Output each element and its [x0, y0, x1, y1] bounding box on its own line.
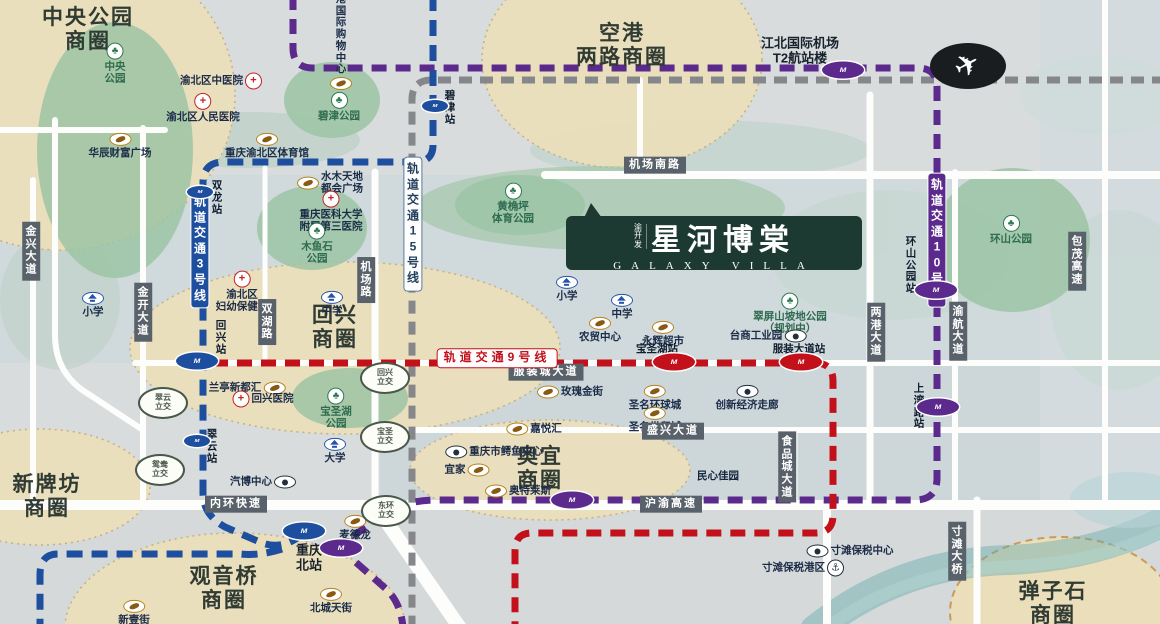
poi-park: ♣碧津公园: [318, 92, 360, 122]
logo-subtitle: GALAXY VILLA: [613, 260, 815, 272]
road-label: 寸滩大桥: [948, 522, 966, 581]
road-label: 渝航大道: [949, 302, 967, 361]
road-label: 包茂高速: [1068, 232, 1086, 291]
poi-anchor: ⚓寸滩保税港区: [762, 560, 844, 577]
district-title: 观音桥 商圈: [190, 565, 259, 613]
landmark-icon: [274, 476, 296, 489]
poi-eye: 创新经济走廊: [716, 385, 779, 411]
poi-label: 新壹街: [118, 614, 150, 624]
road-label: 双湖路: [258, 299, 276, 345]
road-label-text: 金兴大道: [25, 226, 36, 276]
road-label: 机场路: [357, 257, 375, 303]
anchor-icon: ⚓: [827, 560, 844, 577]
road-label: 机场南路: [624, 157, 686, 174]
metro-station: M: [917, 399, 959, 416]
road-label: 金开大道: [134, 283, 152, 342]
poi-shop: 奥特莱斯: [485, 485, 551, 498]
road-label-text: 寸滩大桥: [951, 526, 962, 576]
shopping-icon: [506, 423, 528, 436]
poi-bold: 江北国际机场 T2航站楼: [761, 36, 839, 67]
poi-park: ♣黄桷坪 体育公园: [492, 183, 534, 226]
shopping-icon: [537, 386, 559, 399]
poi-stname: 翠云站: [206, 429, 218, 464]
shopping-icon: [644, 385, 666, 398]
location-map: ✈ 中央公园 商圈空港 两路商圈回兴 商圈奥宜 商圈新牌坊 商圈观音桥 商圈弹子…: [0, 0, 1160, 624]
interchange-oval: 翠云立交: [138, 387, 188, 419]
road-label-text: 机场南路: [629, 159, 681, 171]
poi-label: 寸滩保税中心: [831, 545, 894, 557]
poi-shop: 金港国际购物中心: [330, 0, 352, 90]
metro-logo-icon: M: [933, 287, 940, 293]
interchange-label: 东环立交: [377, 502, 395, 520]
logo-title: 星河博棠: [651, 215, 795, 259]
poi-label: 小学: [83, 306, 104, 318]
road-label: 食品城大道: [778, 431, 796, 502]
school-icon: [321, 291, 343, 304]
poi-hospital: +渝北区中医院: [180, 73, 262, 90]
poi-label: 黄桷坪 体育公园: [492, 201, 534, 226]
poi-school: 中学: [611, 294, 633, 320]
poi-shop: 新壹街: [118, 600, 150, 624]
interchange-label: 鸳鸯立交: [151, 461, 169, 479]
poi-label: 嘉悦汇: [530, 423, 562, 435]
landmark-icon: [807, 545, 829, 558]
poi-hospital: +回兴医院: [233, 391, 294, 408]
landmark-icon: [784, 330, 806, 343]
metro-station: M: [283, 523, 325, 540]
metro-logo-icon: M: [935, 404, 942, 410]
district-title: 弹子石 商圈: [1019, 580, 1088, 624]
metro-station: M: [653, 354, 695, 371]
interchange-label: 回兴立交: [376, 369, 394, 387]
metro-station: M: [780, 354, 822, 371]
poi-label: 宝圣湖 公园: [320, 406, 352, 431]
poi-shop: 玫瑰金街: [537, 386, 603, 399]
metro-station: M: [551, 492, 593, 509]
road-label: 盛兴大道: [642, 423, 704, 440]
interchange-label: 宝圣立交: [376, 428, 394, 446]
logo-pointer: [584, 203, 602, 218]
metro-logo-icon: M: [338, 545, 345, 551]
road-label-text: 金开大道: [137, 287, 148, 337]
interchange-oval: 鸳鸯立交: [135, 454, 185, 486]
road-label-text: 盛兴大道: [647, 425, 699, 437]
hospital-cross-icon: +: [323, 191, 340, 208]
poi-label: 寸滩保税港区: [762, 562, 825, 574]
metro-line-label-text: 轨道交通9号线: [444, 350, 551, 364]
poi-stname: 双龙站: [211, 180, 223, 215]
shopping-icon: [485, 485, 507, 498]
poi-label: 小学: [557, 290, 578, 302]
poi-label: 碧津公园: [318, 110, 360, 122]
poi-label: 双龙站: [211, 180, 223, 215]
poi-shop: 北城天街: [310, 588, 352, 614]
tree-icon: ♣: [331, 92, 348, 109]
metro-station: M: [422, 100, 448, 112]
shopping-icon: [589, 317, 611, 330]
metro-logo-icon: M: [195, 439, 200, 444]
poi-label: 重庆渝北区体育馆: [225, 147, 309, 159]
metro-line-label: 轨道交通3号线: [190, 189, 209, 308]
poi-bold: 重庆 北站: [296, 543, 322, 574]
road-label-text: 沪渝高速: [645, 498, 697, 510]
hospital-cross-icon: +: [195, 93, 212, 110]
poi-shop: 宜家: [445, 464, 490, 477]
poi-park: ♣环山公园: [990, 215, 1032, 245]
poi-label: 中学: [612, 308, 633, 320]
poi-label: 翠云站: [206, 429, 218, 464]
poi-park: ♣宝圣湖 公园: [320, 388, 352, 431]
poi-label: 汽博中心: [230, 476, 272, 488]
poi-hospital: +渝北区人民医院: [166, 93, 240, 123]
metro-logo-icon: M: [798, 359, 805, 365]
interchange-oval: 东环立交: [361, 495, 411, 527]
poi-label: 回兴站: [215, 320, 227, 355]
poi-text: 民心佳园: [697, 470, 739, 482]
metro-station: M: [822, 62, 864, 79]
road-label-text: 机场路: [360, 261, 371, 298]
district-title-text: 观音桥 商圈: [190, 565, 259, 612]
project-logo: 渝开发 星河博棠 GALAXY VILLA: [566, 216, 862, 270]
hospital-cross-icon: +: [233, 391, 250, 408]
metro-logo-icon: M: [198, 190, 203, 195]
poi-label: 木鱼石 公园: [301, 241, 333, 266]
poi-label: 大学: [325, 452, 346, 464]
poi-school: 小学: [556, 276, 578, 302]
poi-label: 农贸中心: [579, 331, 621, 343]
road-label-text: 内环快速: [210, 498, 262, 510]
shopping-icon: [652, 321, 674, 334]
metro-logo-icon: M: [433, 104, 438, 109]
poi-label: 台商工业园: [730, 330, 783, 342]
poi-label: 金港国际购物中心: [335, 0, 347, 76]
district-title-text: 新牌坊 商圈: [13, 473, 82, 520]
metro-line-label-text: 轨道交通3号线: [194, 194, 206, 302]
metro-station: M: [915, 282, 957, 299]
poi-shop: 重庆渝北区体育馆: [225, 133, 309, 159]
poi-eye: 汽博中心: [230, 476, 296, 489]
poi-label: 华辰财富广场: [89, 147, 152, 159]
poi-label: 创新经济走廊: [716, 399, 779, 411]
shopping-icon: [123, 600, 145, 613]
poi-label: 重庆市鳄鱼中心: [469, 446, 543, 458]
poi-shop: 华辰财富广场: [89, 133, 152, 159]
road-label: 沪渝高速: [640, 496, 702, 513]
airplane-glyph: ✈: [950, 47, 986, 85]
tree-icon: ♣: [782, 293, 799, 310]
metro-station: M: [320, 540, 362, 557]
poi-park: ♣中央 公园: [105, 43, 126, 86]
poi-school: 大学: [324, 438, 346, 464]
district-title: 空港 两路商圈: [576, 22, 668, 70]
shopping-icon: [297, 177, 319, 190]
poi-eye: 寸滩保税中心: [807, 545, 894, 558]
shopping-icon: [644, 407, 666, 420]
metro-station: M: [176, 353, 218, 370]
landmark-icon: [736, 385, 758, 398]
road-label-text: 渝航大道: [952, 306, 963, 356]
shopping-icon: [468, 464, 490, 477]
school-icon: [324, 438, 346, 451]
metro-line-label: 轨道交通15号线: [403, 157, 422, 292]
interchange-label: 翠云立交: [154, 394, 172, 412]
metro-line-label-text: 轨道交通15号线: [407, 162, 419, 285]
interchange-oval: 回兴立交: [360, 362, 410, 394]
tree-icon: ♣: [328, 388, 345, 405]
interchange-oval: 宝圣立交: [360, 421, 410, 453]
tree-icon: ♣: [309, 223, 326, 240]
poi-label: 民心佳园: [697, 470, 739, 482]
landmark-icon: [445, 446, 467, 459]
road-label: 内环快速: [205, 496, 267, 513]
poi-label: 中央 公园: [105, 61, 126, 86]
road-label-text: 包茂高速: [1071, 236, 1082, 286]
metro-line-label: 轨道交通9号线: [437, 348, 558, 368]
school-icon: [611, 294, 633, 307]
poi-label: 回兴医院: [252, 393, 294, 405]
hospital-cross-icon: +: [234, 271, 251, 288]
road-label: 两港大道: [867, 303, 885, 362]
shopping-icon: [330, 77, 352, 90]
poi-label: 渝北区中医院: [180, 75, 243, 87]
road-label-text: 两港大道: [870, 307, 881, 357]
tree-icon: ♣: [107, 43, 124, 60]
road-label-text: 食品城大道: [781, 435, 792, 498]
poi-eye: 台商工业园: [730, 330, 807, 343]
poi-stname: 回兴站: [215, 320, 227, 355]
tree-icon: ♣: [1003, 215, 1020, 232]
district-title-text: 空港 两路商圈: [576, 22, 668, 69]
poi-school: 中学: [321, 291, 343, 317]
metro-logo-icon: M: [840, 67, 847, 73]
poi-label: 北城天街: [310, 602, 352, 614]
poi-shop: 农贸中心: [579, 317, 621, 343]
metro-logo-icon: M: [671, 359, 678, 365]
poi-label: 宜家: [445, 464, 466, 476]
logo-brand: 渝开发: [633, 224, 647, 249]
metro-station: M: [187, 186, 213, 198]
poi-label: 中学: [322, 305, 343, 317]
poi-shop: 嘉悦汇: [506, 423, 562, 436]
poi-label: 环山公园: [990, 233, 1032, 245]
airport-icon: ✈: [930, 43, 1006, 89]
district-title: 新牌坊 商圈: [13, 473, 82, 521]
metro-logo-icon: M: [194, 358, 201, 364]
poi-label: 玫瑰金街: [561, 386, 603, 398]
school-icon: [556, 276, 578, 289]
poi-park: ♣木鱼石 公园: [301, 223, 333, 266]
school-icon: [82, 292, 104, 305]
poi-label: 奥特莱斯: [509, 485, 551, 497]
metro-logo-icon: M: [569, 497, 576, 503]
district-title-text: 弹子石 商圈: [1019, 580, 1088, 624]
shopping-icon: [109, 133, 131, 146]
tree-icon: ♣: [505, 183, 522, 200]
road-label-text: 双湖路: [261, 303, 272, 340]
metro-station: M: [184, 435, 210, 447]
shopping-icon: [320, 588, 342, 601]
poi-label: 渝北区人民医院: [166, 111, 240, 123]
poi-school: 小学: [82, 292, 104, 318]
hospital-cross-icon: +: [245, 73, 262, 90]
poi-label: 重庆 北站: [296, 543, 322, 574]
poi-eye: 重庆市鳄鱼中心: [445, 446, 543, 459]
metro-logo-icon: M: [301, 528, 308, 534]
shopping-icon: [256, 133, 278, 146]
road-label: 金兴大道: [22, 222, 40, 281]
poi-label: 江北国际机场 T2航站楼: [761, 36, 839, 67]
